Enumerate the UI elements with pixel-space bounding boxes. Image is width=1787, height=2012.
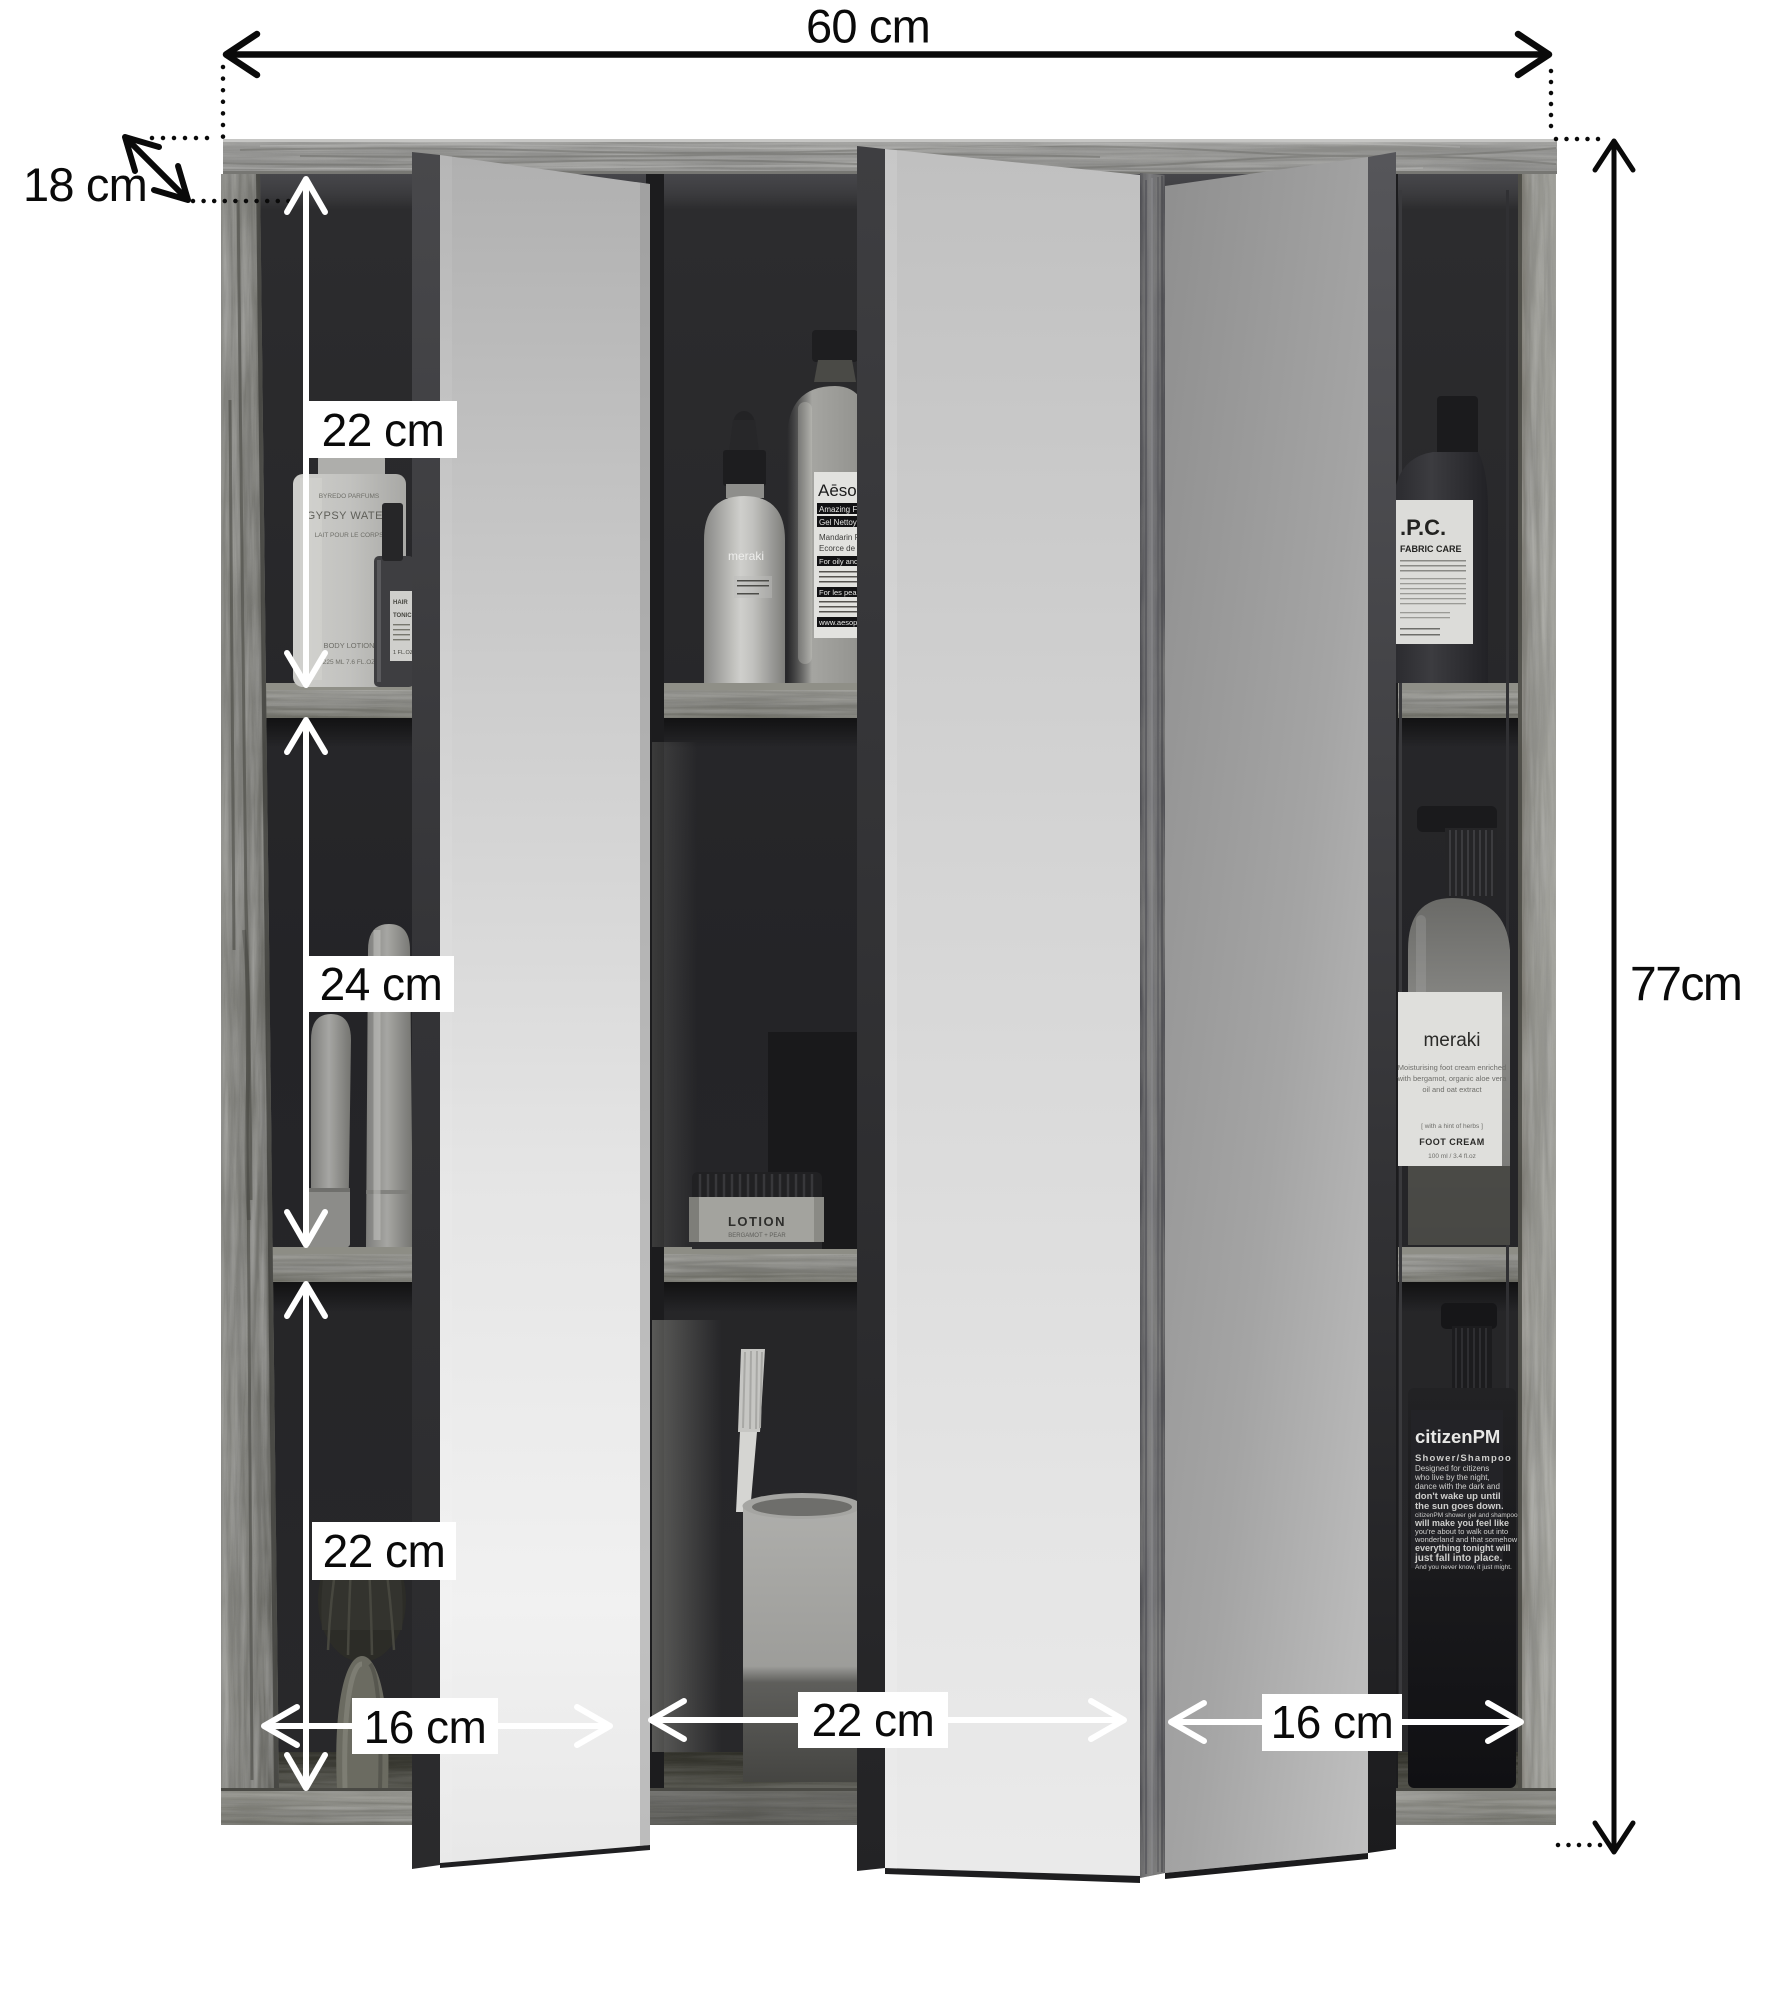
svg-text:dance with the dark and: dance with the dark and — [1415, 1482, 1500, 1491]
svg-text:Designed for citizens: Designed for citizens — [1415, 1464, 1489, 1473]
svg-text:FOOT CREAM: FOOT CREAM — [1419, 1137, 1485, 1147]
svg-text:Moisturising foot cream enrich: Moisturising foot cream enriched — [1398, 1063, 1506, 1072]
svg-text:TONIC: TONIC — [393, 613, 412, 619]
svg-text:.P.C.: .P.C. — [1400, 515, 1446, 540]
svg-text:77cm: 77cm — [1630, 958, 1741, 1011]
svg-text:[ with a hint of herbs ]: [ with a hint of herbs ] — [1421, 1123, 1483, 1130]
svg-text:16 cm: 16 cm — [364, 1701, 487, 1753]
svg-text:22 cm: 22 cm — [323, 1525, 446, 1577]
svg-text:meraki: meraki — [1423, 1030, 1480, 1051]
svg-text:BODY LOTION: BODY LOTION — [323, 641, 374, 650]
svg-text:Shower/Shampoo: Shower/Shampoo — [1415, 1453, 1512, 1464]
svg-text:22 cm: 22 cm — [322, 404, 445, 456]
svg-text:GYPSY WATER: GYPSY WATER — [307, 510, 392, 522]
svg-text:100 ml / 3.4 fl.oz: 100 ml / 3.4 fl.oz — [1428, 1153, 1476, 1160]
svg-text:HAIR: HAIR — [393, 600, 408, 606]
svg-text:LAIT POUR LE CORPS: LAIT POUR LE CORPS — [315, 532, 385, 539]
svg-text:FABRIC CARE: FABRIC CARE — [1400, 544, 1462, 554]
svg-text:just fall into place.: just fall into place. — [1414, 1553, 1502, 1564]
svg-text:1 FL.OZ: 1 FL.OZ — [393, 650, 414, 656]
svg-text:60 cm: 60 cm — [806, 0, 930, 53]
svg-text:who live by the night,: who live by the night, — [1414, 1473, 1490, 1482]
svg-text:16 cm: 16 cm — [1271, 1696, 1394, 1748]
svg-text:oil and oat extract: oil and oat extract — [1422, 1085, 1482, 1094]
svg-text:225 ML 7.6 FL.OZ: 225 ML 7.6 FL.OZ — [323, 659, 376, 666]
svg-text:24 cm: 24 cm — [320, 958, 443, 1010]
svg-text:LOTION: LOTION — [728, 1214, 786, 1229]
svg-text:with bergamot, organic aloe ve: with bergamot, organic aloe vera — [1397, 1074, 1508, 1083]
svg-text:meraki: meraki — [728, 549, 764, 563]
svg-text:citizenPM: citizenPM — [1415, 1426, 1500, 1447]
svg-text:18 cm: 18 cm — [23, 158, 147, 211]
svg-text:BYREDO PARFUMS: BYREDO PARFUMS — [319, 493, 380, 500]
svg-text:And you never know, it just mi: And you never know, it just might. — [1415, 1564, 1512, 1571]
svg-text:everything tonight will: everything tonight will — [1415, 1543, 1511, 1553]
svg-text:BERGAMOT + PEAR: BERGAMOT + PEAR — [728, 1233, 786, 1239]
svg-text:22 cm: 22 cm — [812, 1694, 935, 1746]
svg-text:the sun goes down.: the sun goes down. — [1415, 1501, 1504, 1512]
